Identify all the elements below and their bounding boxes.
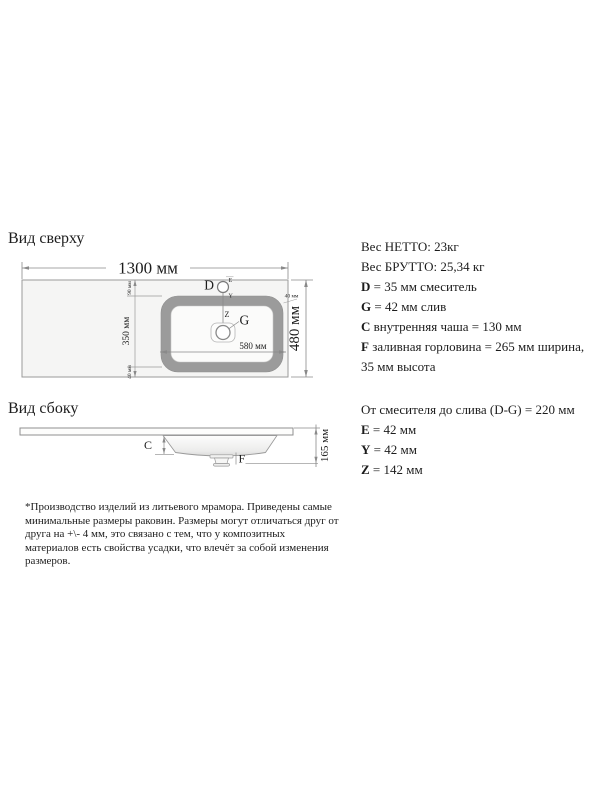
- spec-key: Z: [361, 462, 370, 477]
- spec-text: Вес НЕТТО: 23кг: [361, 239, 459, 254]
- spec-text: 35 мм высота: [361, 359, 436, 374]
- dim-offset-top-label: 90 мм: [127, 281, 133, 295]
- spec-text: = 42 мм: [370, 442, 417, 457]
- dim-basin-width-label: 580 мм: [239, 341, 266, 351]
- label-z: Z: [225, 310, 230, 319]
- spec-row: 35 мм высота: [361, 357, 584, 377]
- arrow-up-icon: [304, 280, 308, 287]
- arrow-down-icon: [314, 457, 317, 464]
- dim-offset-bottom-label: 40 мм: [127, 365, 133, 379]
- countertop-section: [20, 428, 293, 435]
- drain-fitting: [210, 455, 233, 466]
- spec-key: G: [361, 299, 371, 314]
- specs-upper: Вес НЕТТО: 23кг Вес БРУТТО: 25,34 кг D =…: [361, 237, 584, 377]
- dim-total-height-label: 165 мм: [319, 429, 331, 462]
- bowl-section: [163, 436, 277, 457]
- label-y: Y: [229, 294, 234, 300]
- spec-row: От смесителя до слива (D-G) = 220 мм: [361, 400, 575, 420]
- spec-row: Вес НЕТТО: 23кг: [361, 237, 584, 257]
- spec-row: D = 35 мм смеситель: [361, 277, 584, 297]
- spec-row: F заливная горловина = 265 мм ширина,: [361, 337, 584, 357]
- footnote-line: *Производство изделий из литьевого мрамо…: [25, 501, 339, 515]
- spec-key: C: [361, 319, 370, 334]
- spec-row: Y = 42 мм: [361, 440, 575, 460]
- spec-row: E = 42 мм: [361, 420, 575, 440]
- spec-text: = 42 мм слив: [371, 299, 446, 314]
- specs-lower: От смесителя до слива (D-G) = 220 мм E =…: [361, 400, 575, 480]
- arrow-down-icon: [162, 448, 165, 454]
- label-g: G: [240, 313, 250, 328]
- label-f: F: [239, 452, 246, 466]
- spec-text: внутренняя чаша = 130 мм: [370, 319, 521, 334]
- spec-row: Z = 142 мм: [361, 460, 575, 480]
- spec-row: C внутренняя чаша = 130 мм: [361, 317, 584, 337]
- footnote-line: минимальные размеры раковин. Размеры мог…: [25, 515, 339, 529]
- footnote-line: размеров.: [25, 555, 339, 569]
- top-view-drawing: 1300 мм 480 мм 90 мм 350 мм 40 мм 580: [0, 225, 340, 395]
- spec-text: = 142 мм: [370, 462, 423, 477]
- spec-key: E: [361, 422, 370, 437]
- spec-text: = 42 мм: [370, 422, 417, 437]
- spec-key: Y: [361, 442, 370, 457]
- spec-key: F: [361, 339, 369, 354]
- footnote-line: друга на +\- 4 мм, это связано с тем, чт…: [25, 528, 339, 542]
- arrow-up-icon: [314, 428, 317, 435]
- dim-height-label: 480 мм: [287, 305, 303, 351]
- arrow-down-icon: [304, 370, 308, 377]
- spec-key: D: [361, 279, 370, 294]
- spec-text: От смесителя до слива (D-G) = 220 мм: [361, 402, 575, 417]
- dim-offset-right-label: 40 мм: [285, 294, 299, 300]
- arrow-left-icon: [22, 266, 29, 270]
- spec-text: = 35 мм смеситель: [370, 279, 476, 294]
- spec-text: Вес БРУТТО: 25,34 кг: [361, 259, 484, 274]
- dim-width-label: 1300 мм: [118, 259, 178, 278]
- spec-text: заливная горловина = 265 мм ширина,: [369, 339, 584, 354]
- dim-basin-height-label: 350 мм: [122, 317, 132, 346]
- side-view-drawing: C F 165 мм: [0, 395, 340, 495]
- spec-row: Вес БРУТТО: 25,34 кг: [361, 257, 584, 277]
- faucet-hole: [218, 282, 229, 293]
- label-d: D: [204, 278, 214, 293]
- footnote-line: материалов есть свойства усадки, что вле…: [25, 542, 339, 556]
- drain-hole: [216, 326, 230, 340]
- spec-row: G = 42 мм слив: [361, 297, 584, 317]
- page: Вид сверху 1300 мм 480 мм: [0, 0, 600, 800]
- label-e: E: [229, 278, 233, 284]
- footnote: *Производство изделий из литьевого мрамо…: [25, 501, 339, 569]
- label-c: C: [144, 438, 152, 452]
- arrow-right-icon: [281, 266, 288, 270]
